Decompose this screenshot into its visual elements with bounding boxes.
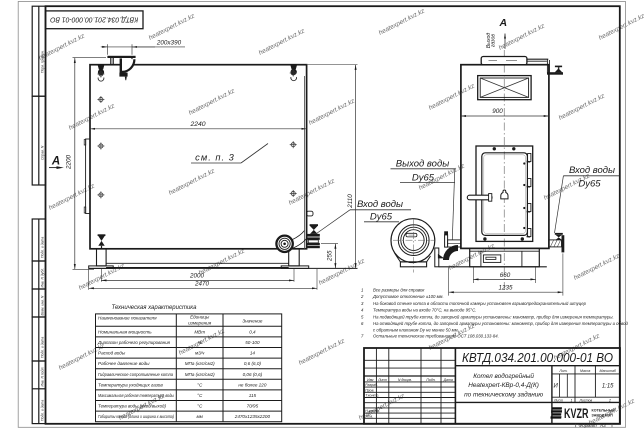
svg-text:На отводящей трубе котла, до з: На отводящей трубе котла, до запорной ар… — [373, 321, 629, 326]
svg-text:На боковой стенке котла в обла: На боковой стенке котла в области топочн… — [373, 301, 587, 306]
svg-text:Dy65: Dy65 — [370, 212, 393, 223]
svg-text:Инв. N дубл.: Инв. N дубл. — [41, 268, 45, 288]
svg-text:Значение: Значение — [242, 318, 263, 323]
svg-text:Допустимое отклонение ±100 мм: Допустимое отклонение ±100 мм. — [372, 294, 444, 299]
svg-text:Подп. и дата: Подп. и дата — [41, 237, 45, 258]
svg-text:Инв. N подл.: Инв. N подл. — [41, 367, 45, 387]
svg-text:Heatexpert-КВр-0,4-Д(К): Heatexpert-КВр-0,4-Д(К) — [468, 382, 539, 389]
svg-text:Рабочее давление воды: Рабочее давление воды — [98, 361, 150, 366]
svg-text:Диапазон рабочего регулировани: Диапазон рабочего регулирования — [97, 340, 170, 345]
svg-text:Dy65: Dy65 — [578, 178, 601, 189]
svg-text:по техническому заданию: по техническому заданию — [464, 391, 543, 399]
svg-text:КОТЕЛЬНЫЙ: КОТЕЛЬНЫЙ — [592, 409, 616, 413]
svg-text:2200: 2200 — [65, 155, 72, 171]
svg-text:газов: газов — [491, 34, 497, 48]
svg-text:1235: 1235 — [498, 285, 513, 292]
svg-text:Единицы: Единицы — [190, 314, 210, 319]
svg-text:Выход воды: Выход воды — [396, 158, 449, 169]
svg-text:Номинальная мощность: Номинальная мощность — [98, 329, 152, 334]
svg-text:Котел водогрейный: Котел водогрейный — [473, 372, 534, 380]
svg-text:200х390: 200х390 — [156, 40, 182, 47]
svg-text:14: 14 — [250, 351, 256, 356]
svg-text:Пров.: Пров. — [365, 388, 374, 392]
svg-text:Температура воды на входе 70°: Температура воды на входе 70°С, на выход… — [373, 308, 476, 313]
svg-text:2: 2 — [608, 398, 611, 402]
svg-text:Разраб.: Разраб. — [365, 383, 378, 387]
svg-text:мм: мм — [197, 414, 204, 419]
svg-text:не более 220: не более 220 — [238, 382, 266, 387]
svg-text:Техническая характеристика: Техническая характеристика — [112, 305, 198, 311]
svg-text:Лит.: Лит. — [558, 369, 567, 373]
svg-text:КВТД.034.201.00.000-01 ВО: КВТД.034.201.00.000-01 ВО — [50, 15, 138, 24]
svg-text:%: % — [198, 340, 202, 345]
svg-text:На подводящей трубе котла, до: На подводящей трубе котла, до запорной а… — [373, 314, 614, 319]
svg-text:2000: 2000 — [189, 273, 205, 280]
svg-text:Подп. и дата: Подп. и дата — [41, 400, 45, 421]
svg-text:Подп.: Подп. — [426, 378, 435, 382]
svg-text:Температура воды (вход/выход): Температура воды (вход/выход) — [98, 404, 166, 409]
svg-text:660: 660 — [500, 272, 511, 279]
svg-text:И: И — [554, 383, 559, 389]
svg-text:2470: 2470 — [194, 281, 210, 288]
svg-text:Листов: Листов — [579, 398, 593, 402]
svg-text:Подп. и дата: Подп. и дата — [41, 337, 45, 358]
svg-text:Наименование показателя: Наименование показателя — [98, 316, 157, 321]
svg-text:°С: °С — [197, 404, 203, 409]
svg-text:50-100: 50-100 — [245, 340, 260, 345]
svg-text:Взам. инв. N: Взам. инв. N — [41, 295, 45, 315]
svg-text:Все размеры для справок: Все размеры для справок — [373, 288, 425, 293]
svg-text:А: А — [51, 156, 60, 168]
svg-text:Остальные технические требован: Остальные технические требования по ОСТ … — [373, 334, 499, 339]
svg-text:115: 115 — [249, 393, 257, 398]
svg-text:Масса: Масса — [580, 369, 590, 373]
svg-text:Лист: Лист — [553, 398, 563, 402]
svg-text:2240: 2240 — [189, 121, 205, 128]
svg-text:А: А — [499, 17, 508, 29]
svg-text:0,06 (0,6): 0,06 (0,6) — [243, 372, 263, 377]
svg-text:Гидравлическое сопротивление к: Гидравлическое сопротивление котла — [98, 372, 173, 377]
svg-text:2110: 2110 — [347, 194, 354, 209]
svg-text:Максимальная рабочая температу: Максимальная рабочая температура воды — [98, 393, 174, 398]
svg-text:900: 900 — [492, 108, 503, 115]
svg-text:МПа (кгс/см2): МПа (кгс/см2) — [185, 372, 215, 377]
svg-text:Dy65: Dy65 — [412, 172, 435, 183]
svg-text:МВт: МВт — [194, 329, 205, 334]
svg-text:Температура уходящих газов: Температура уходящих газов — [98, 382, 163, 387]
svg-text:N докум.: N докум. — [398, 378, 412, 382]
svg-text:0,4: 0,4 — [249, 329, 256, 334]
svg-text:Лист: Лист — [377, 378, 387, 382]
svg-text:см. п. 3: см. п. 3 — [195, 153, 235, 163]
svg-text:ЗАВОД РЭП: ЗАВОД РЭП — [592, 414, 614, 418]
svg-text:Дата: Дата — [443, 378, 453, 382]
svg-text:Т.контр.: Т.контр. — [365, 394, 379, 398]
svg-text:с обратным клапаном Dу не мен: с обратным клапаном Dу не менее 50 мм. — [373, 327, 459, 332]
svg-text:Утв.: Утв. — [365, 414, 373, 418]
svg-text:КВТД.034.201.00.000-01 ВО: КВТД.034.201.00.000-01 ВО — [462, 351, 613, 365]
svg-text:1: 1 — [571, 398, 573, 402]
svg-text:измерения: измерения — [188, 321, 212, 326]
svg-text:Н.контр.: Н.контр. — [365, 409, 380, 413]
svg-text:МПа (кгс/см2): МПа (кгс/см2) — [185, 361, 215, 366]
svg-text:KVZR: KVZR — [564, 406, 589, 421]
svg-text:°С: °С — [197, 393, 203, 398]
svg-text:Изм: Изм — [367, 378, 374, 382]
svg-text:Расход воды: Расход воды — [98, 351, 126, 356]
svg-text:А3: А3 — [599, 423, 606, 428]
svg-text:Масштаб: Масштаб — [600, 369, 617, 373]
svg-text:Вход воды: Вход воды — [357, 199, 403, 210]
svg-text:70/95: 70/95 — [247, 404, 259, 409]
svg-text:Габариты котла (длина х ширина: Габариты котла (длина х ширина х высота) — [98, 414, 174, 419]
svg-text:255: 255 — [327, 250, 334, 262]
svg-text:2470х1235х2200: 2470х1235х2200 — [234, 414, 271, 419]
svg-text:°С: °С — [197, 382, 203, 387]
svg-text:1:15: 1:15 — [602, 383, 614, 389]
svg-text:Формат: Формат — [579, 423, 597, 428]
svg-text:Вход воды: Вход воды — [569, 165, 615, 176]
svg-text:Перв. примен.: Перв. примен. — [41, 50, 45, 73]
svg-text:0,6 (6,0): 0,6 (6,0) — [244, 361, 262, 366]
svg-text:Справ. N: Справ. N — [41, 145, 45, 160]
svg-text:м3/ч: м3/ч — [195, 351, 205, 356]
